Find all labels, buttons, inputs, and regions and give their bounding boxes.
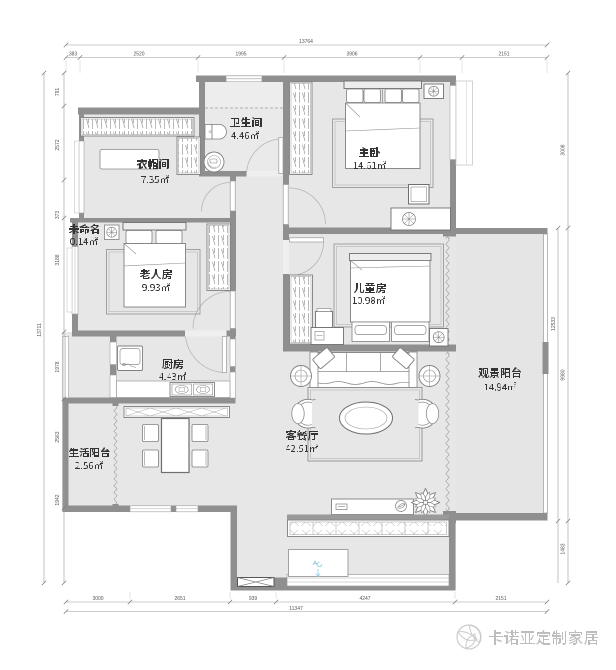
svg-text:12533: 12533	[551, 317, 557, 331]
svg-text:1483: 1483	[561, 543, 567, 554]
svg-text:1978: 1978	[55, 361, 61, 372]
svg-text:13764: 13764	[299, 39, 313, 45]
svg-text:2651: 2651	[174, 596, 185, 602]
svg-text:939: 939	[249, 596, 258, 602]
svg-text:383: 383	[69, 52, 78, 58]
svg-text:2151: 2151	[498, 52, 509, 58]
svg-text:791: 791	[55, 88, 61, 97]
svg-text:2572: 2572	[55, 139, 61, 150]
svg-text:1995: 1995	[235, 52, 246, 58]
svg-text:3000: 3000	[92, 596, 103, 602]
svg-text:2563: 2563	[55, 431, 61, 442]
svg-text:11347: 11347	[289, 606, 303, 612]
svg-text:3008: 3008	[561, 144, 567, 155]
svg-text:3906: 3906	[346, 52, 357, 58]
svg-text:373: 373	[55, 211, 61, 220]
svg-text:4247: 4247	[359, 596, 370, 602]
svg-text:13711: 13711	[37, 323, 43, 337]
svg-text:2520: 2520	[133, 52, 144, 58]
svg-text:2151: 2151	[495, 596, 506, 602]
svg-text:9980: 9980	[561, 369, 567, 380]
svg-text:3188: 3188	[55, 254, 61, 265]
svg-text:1942: 1942	[55, 494, 61, 505]
